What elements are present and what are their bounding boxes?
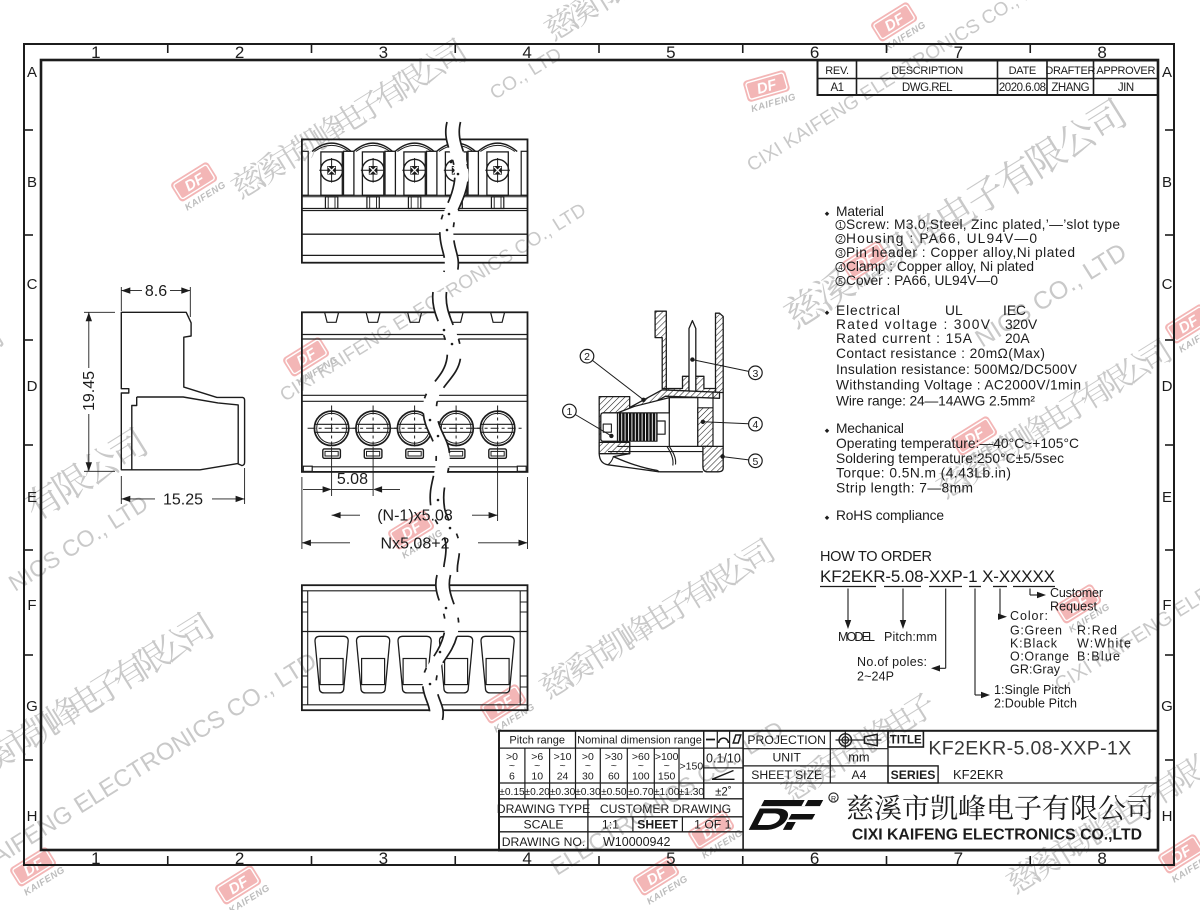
- svg-text:4: 4: [752, 419, 758, 431]
- svg-text:150: 150: [658, 771, 676, 783]
- svg-text:A: A: [27, 64, 37, 81]
- svg-text:Wire range: 24—14AWG 2.5m: Wire range: 24—14AWG 2.5mm²: [836, 394, 1035, 409]
- svg-text:±1.30: ±1.30: [679, 787, 705, 798]
- svg-text:2: 2: [235, 43, 244, 62]
- svg-text:Pitch range: Pitch range: [509, 735, 565, 747]
- svg-text:4: 4: [522, 43, 531, 62]
- svg-text:Request: Request: [1050, 600, 1098, 614]
- svg-text:6: 6: [509, 771, 515, 783]
- svg-text:H: H: [1162, 808, 1173, 825]
- svg-text:G:Green: G:Green: [1010, 624, 1062, 638]
- svg-text:Nx5.08+2: Nx5.08+2: [381, 535, 450, 552]
- svg-text:TITLE: TITLE: [890, 734, 922, 746]
- svg-text:R:Red: R:Red: [1077, 624, 1117, 638]
- svg-text:C: C: [1162, 276, 1173, 293]
- svg-text:10: 10: [531, 771, 543, 783]
- svg-text:7: 7: [954, 43, 963, 62]
- svg-text:DRAWING TYPE: DRAWING TYPE: [497, 802, 590, 816]
- svg-text:5.08: 5.08: [337, 471, 368, 488]
- svg-text:DATE: DATE: [1009, 65, 1036, 77]
- svg-text:F: F: [1162, 597, 1171, 614]
- svg-text:1 OF 1: 1 OF 1: [694, 818, 731, 832]
- svg-text:Housing : PA66, UL94V—0: Housing : PA66, UL94V—0: [846, 231, 1037, 246]
- svg-text:3: 3: [838, 249, 843, 258]
- svg-text:100: 100: [632, 771, 650, 783]
- svg-text:±0.30: ±0.30: [550, 787, 576, 798]
- svg-text:W10000942: W10000942: [603, 835, 670, 849]
- svg-text:3: 3: [379, 849, 388, 868]
- svg-text:IEC: IEC: [1003, 303, 1026, 318]
- svg-text:O:Orange: O:Orange: [1010, 650, 1069, 664]
- svg-text:2:Double Pitch: 2:Double Pitch: [994, 697, 1077, 711]
- svg-text:6: 6: [810, 849, 819, 868]
- svg-text:2020.6.08: 2020.6.08: [999, 82, 1046, 94]
- svg-text:REV.: REV.: [825, 65, 849, 77]
- svg-text:Rated voltage : 300V: Rated voltage : 300V: [836, 317, 991, 332]
- svg-text:UNIT: UNIT: [772, 751, 801, 765]
- svg-text:HOW TO ORDER: HOW TO ORDER: [820, 549, 932, 565]
- svg-text:D: D: [1162, 378, 1173, 395]
- svg-text:Strip length: 7—8mm: Strip length: 7—8mm: [836, 481, 973, 496]
- svg-text:2: 2: [838, 235, 843, 244]
- svg-text:5: 5: [752, 456, 758, 468]
- svg-text:Nominal dimension range: Nominal dimension range: [577, 735, 702, 747]
- svg-text:Color:: Color:: [1010, 609, 1048, 623]
- svg-text:15.25: 15.25: [163, 492, 203, 509]
- svg-text:±2˚: ±2˚: [715, 786, 732, 798]
- svg-text:B: B: [27, 174, 37, 191]
- svg-text:B: B: [1162, 174, 1172, 191]
- svg-text:SCALE: SCALE: [524, 818, 564, 832]
- svg-text:1: 1: [91, 849, 100, 868]
- svg-text:ZHANG: ZHANG: [1051, 82, 1089, 94]
- svg-text:1: 1: [91, 43, 100, 62]
- svg-text:0.1/10: 0.1/10: [706, 751, 741, 765]
- svg-text:R: R: [831, 796, 836, 803]
- svg-text:7: 7: [954, 849, 963, 868]
- svg-text:4: 4: [522, 849, 531, 868]
- svg-text:6: 6: [810, 43, 819, 62]
- svg-text:±0.20: ±0.20: [525, 787, 551, 798]
- svg-text:B:Blue: B:Blue: [1077, 650, 1120, 664]
- svg-text:PROJECTION: PROJECTION: [747, 733, 826, 747]
- svg-text:mm: mm: [848, 750, 869, 765]
- svg-text:3: 3: [379, 43, 388, 62]
- svg-text:Operating temperature:—40°C~+: Operating temperature:—40°C~+105°C: [836, 436, 1079, 451]
- svg-text:Cover : PA66, UL94V—0: Cover : PA66, UL94V—0: [846, 273, 998, 288]
- svg-text:Customer: Customer: [1050, 586, 1103, 600]
- svg-text:±1.00: ±1.00: [654, 787, 680, 798]
- svg-text:Withstanding Voltage : AC20: Withstanding Voltage : AC2000V/1min: [836, 378, 1081, 393]
- svg-text:RoHS compliance: RoHS compliance: [836, 508, 944, 523]
- svg-text:K:Black: K:Black: [1010, 637, 1058, 651]
- svg-text:SHEET: SHEET: [637, 818, 678, 832]
- svg-text:(N-1)x5.08: (N-1)x5.08: [377, 508, 453, 525]
- svg-text:Clamp : Copper alloy, Ni: Clamp : Copper alloy, Ni plated: [846, 259, 1034, 274]
- svg-text:Soldering temperature:250°C±5: Soldering temperature:250°C±5/5sec: [836, 451, 1064, 466]
- svg-text:KF2EKR: KF2EKR: [953, 767, 1004, 782]
- svg-text:DRAWING NO.: DRAWING NO.: [502, 835, 586, 849]
- svg-text:Pitch:mm: Pitch:mm: [884, 630, 937, 644]
- svg-text:2~24P: 2~24P: [857, 670, 894, 684]
- svg-text:4: 4: [838, 263, 843, 272]
- svg-text:>150: >150: [680, 761, 704, 773]
- svg-text:±0.15: ±0.15: [499, 787, 525, 798]
- svg-text:G: G: [1161, 698, 1173, 715]
- svg-text:60: 60: [608, 771, 620, 783]
- svg-text:3: 3: [752, 368, 758, 380]
- svg-text:Rated current : 15A: Rated current : 15A: [836, 331, 973, 346]
- svg-text:KF2EKR-5.08-XXP-1X: KF2EKR-5.08-XXP-1X: [928, 738, 1131, 760]
- svg-text:8: 8: [1097, 43, 1106, 62]
- svg-text:G: G: [26, 698, 38, 715]
- svg-text:Contact resistance : 20mΩ(M: Contact resistance : 20mΩ(Max): [836, 346, 1045, 361]
- svg-text:DESCRIPTION: DESCRIPTION: [891, 65, 963, 77]
- svg-text:DRAFTER: DRAFTER: [1045, 65, 1095, 77]
- svg-text:Electrical: Electrical: [836, 303, 900, 318]
- svg-text:DWG.REL: DWG.REL: [902, 82, 953, 94]
- svg-text:5: 5: [666, 849, 675, 868]
- svg-text:UL: UL: [945, 303, 963, 318]
- svg-text:Screw: M3.0,Steel, Zinc plat: Screw: M3.0,Steel, Zinc plated,’—’slot t…: [846, 217, 1120, 232]
- svg-text:8.6: 8.6: [145, 283, 167, 300]
- svg-text:A: A: [1162, 64, 1172, 81]
- svg-text:1:Single Pitch: 1:Single Pitch: [994, 683, 1071, 697]
- svg-text:A4: A4: [851, 768, 866, 782]
- svg-text:±0.50: ±0.50: [601, 787, 627, 798]
- svg-text:1:1: 1:1: [602, 818, 619, 832]
- svg-text:Torque: 0.5N.m (4.43Lb.in): Torque: 0.5N.m (4.43Lb.in): [836, 466, 1011, 481]
- svg-text:CIXI KAIFENG ELECTRONICS CO.,L: CIXI KAIFENG ELECTRONICS CO.,LTD: [852, 827, 1142, 844]
- svg-text:2: 2: [235, 849, 244, 868]
- svg-text:24: 24: [557, 771, 569, 783]
- svg-text:E: E: [27, 489, 37, 506]
- svg-text:5: 5: [838, 277, 843, 286]
- svg-text:±0.70: ±0.70: [628, 787, 654, 798]
- svg-text:A1: A1: [830, 82, 843, 94]
- svg-text:F: F: [27, 597, 36, 614]
- svg-text:D: D: [27, 378, 38, 395]
- svg-text:2: 2: [584, 351, 590, 363]
- svg-text:5: 5: [666, 43, 675, 62]
- svg-text:KF2EKR-5.08-XXP-1 X-XXXXX: KF2EKR-5.08-XXP-1 X-XXXXX: [820, 567, 1055, 586]
- svg-text:H: H: [27, 808, 38, 825]
- svg-text:GR:Gray: GR:Gray: [1010, 663, 1061, 677]
- svg-text:JIN: JIN: [1118, 82, 1134, 94]
- svg-text:±0.30: ±0.30: [575, 787, 601, 798]
- svg-text:MODEL: MODEL: [838, 630, 875, 644]
- svg-text:320V: 320V: [1005, 317, 1038, 332]
- svg-text:CUSTOMER DRAWING: CUSTOMER DRAWING: [600, 802, 731, 816]
- svg-text:Insulation resistance: 500MΩ: Insulation resistance: 500MΩ/DC500V: [836, 362, 1078, 377]
- svg-text:1: 1: [838, 221, 843, 230]
- svg-text:8: 8: [1097, 849, 1106, 868]
- svg-text:APPROVER: APPROVER: [1096, 65, 1155, 77]
- svg-text:19.45: 19.45: [81, 371, 98, 411]
- svg-text:1: 1: [566, 406, 572, 418]
- svg-text:C: C: [27, 276, 38, 293]
- svg-text:Mechanical: Mechanical: [836, 421, 904, 436]
- svg-text:Pin header : Copper alloy,: Pin header : Copper alloy,Ni plated: [846, 245, 1075, 260]
- svg-text:30: 30: [582, 771, 594, 783]
- svg-text:20A: 20A: [1005, 331, 1030, 346]
- svg-text:SHEET SIZE: SHEET SIZE: [751, 768, 822, 782]
- svg-text:SERIES: SERIES: [891, 768, 936, 782]
- svg-text:E: E: [1162, 489, 1172, 506]
- svg-text:No.of poles:: No.of poles:: [857, 655, 927, 669]
